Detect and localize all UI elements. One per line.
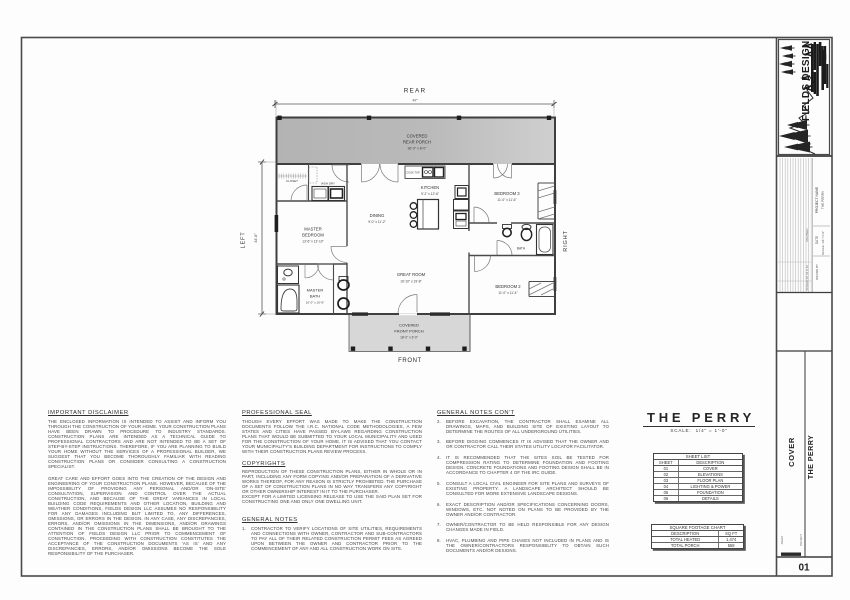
svg-text:BEDROOM: BEDROOM: [302, 233, 324, 238]
svg-text:BATH: BATH: [517, 247, 526, 251]
svg-text:GREAT ROOM: GREAT ROOM: [397, 272, 426, 277]
svg-text:COOK TOP: COOK TOP: [406, 171, 420, 175]
svg-text:WSH DRY: WSH DRY: [321, 182, 335, 186]
svg-text:LEFT: LEFT: [241, 232, 247, 249]
svg-text:CLOSET: CLOSET: [286, 179, 298, 183]
svg-text:9'-0" x 11'-2": 9'-0" x 11'-2": [368, 220, 386, 224]
svg-text:MASTER: MASTER: [304, 227, 321, 232]
svg-text:RIGHT: RIGHT: [563, 230, 569, 251]
svg-text:DINING: DINING: [370, 213, 385, 218]
svg-text:MASTER: MASTER: [307, 288, 324, 293]
svg-text:9'-2" x 12'-6": 9'-2" x 12'-6": [421, 192, 439, 196]
svg-text:KITCHEN: KITCHEN: [421, 185, 439, 190]
svg-text:34'-6": 34'-6": [254, 233, 258, 243]
svg-text:BEDROOM 3: BEDROOM 3: [494, 191, 520, 196]
svg-text:BEDROOM 2: BEDROOM 2: [495, 284, 521, 289]
svg-text:16'-10" x 19'-8": 16'-10" x 19'-8": [400, 280, 421, 284]
svg-text:FRONT PORCH: FRONT PORCH: [394, 329, 423, 334]
svg-text:COVERED: COVERED: [407, 134, 428, 139]
svg-text:13'-6" x 13'-10": 13'-6" x 13'-10": [302, 240, 323, 244]
svg-text:BATH: BATH: [310, 294, 320, 299]
svg-text:11'-0" x 11'-4": 11'-0" x 11'-4": [498, 291, 517, 295]
svg-text:47': 47': [413, 99, 418, 103]
svg-text:FRONT: FRONT: [398, 358, 422, 364]
svg-text:REAR PORCH: REAR PORCH: [403, 140, 431, 145]
svg-text:REAR: REAR: [404, 88, 427, 95]
svg-text:11'-0" x 11'-6": 11'-0" x 11'-6": [497, 198, 516, 202]
svg-text:COVERED: COVERED: [399, 323, 419, 328]
svg-text:10'-0" x 10'-6": 10'-0" x 10'-6": [306, 301, 324, 305]
svg-text:36'-0" x 8'-0": 36'-0" x 8'-0": [408, 147, 428, 151]
svg-text:18'-0" x 6'-0": 18'-0" x 6'-0": [400, 336, 418, 340]
